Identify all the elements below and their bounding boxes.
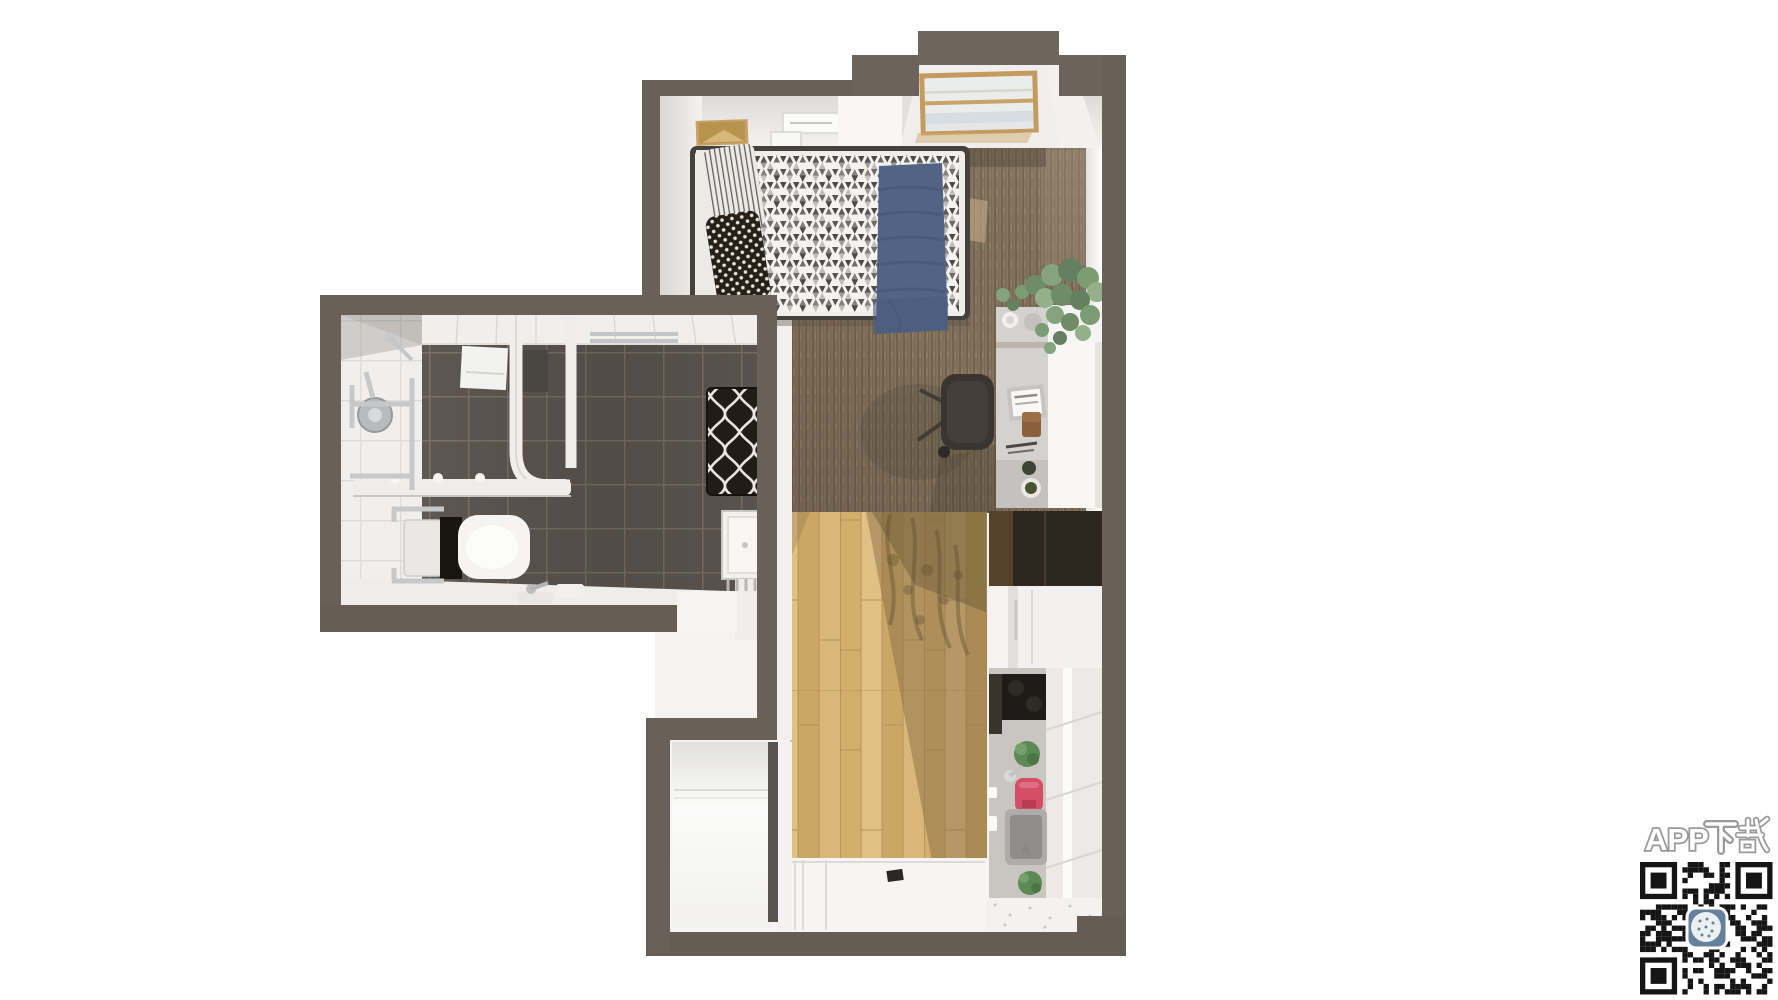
svg-text:APP: APP: [1645, 822, 1709, 857]
